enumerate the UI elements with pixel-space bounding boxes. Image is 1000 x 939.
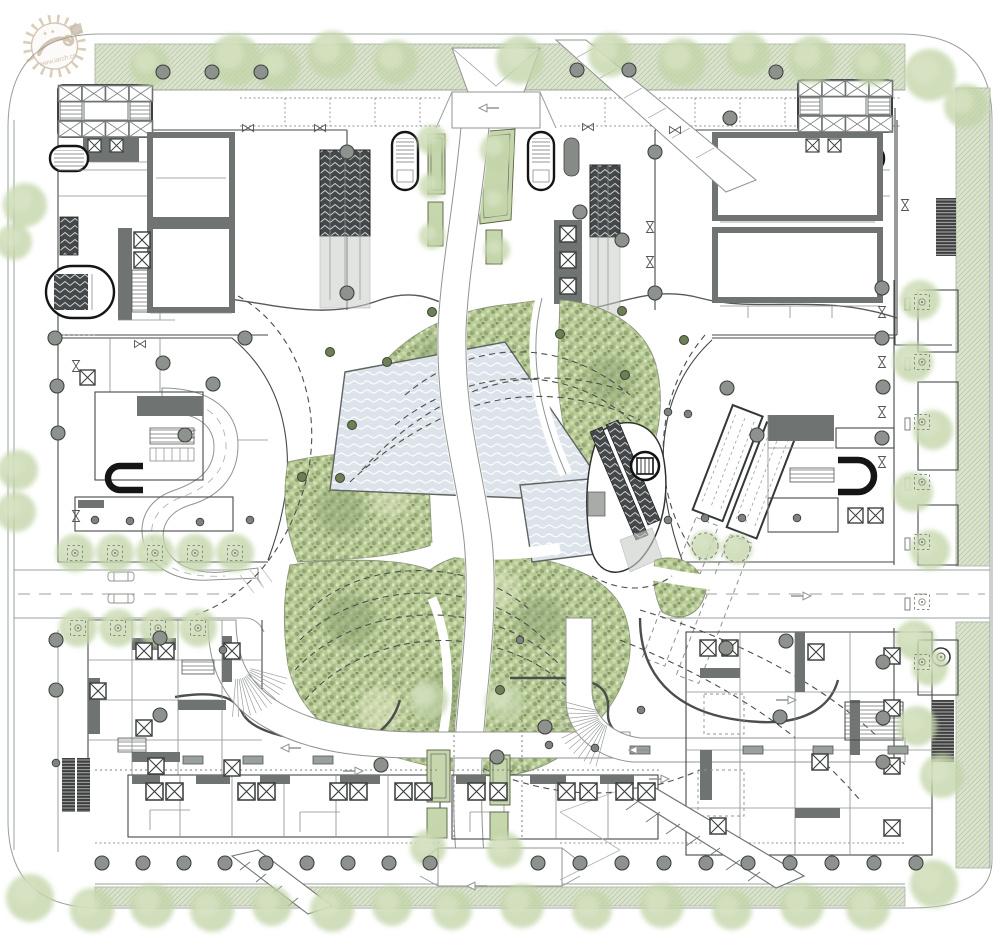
round-elevator <box>631 452 659 480</box>
site-plan-canvas: ✦ ✦ www.iarch.cn <box>0 0 1000 939</box>
u-turn-lane <box>108 466 143 490</box>
central-pavilion <box>587 420 666 572</box>
building-quadrant-top-left <box>46 85 452 335</box>
car-icon <box>108 572 134 603</box>
building-quadrant-top-right <box>554 80 952 345</box>
watermark-stamp: ✦ ✦ www.iarch.cn <box>0 0 110 95</box>
stair-oval-pod <box>392 132 418 190</box>
escalator-bank-topright <box>590 165 620 237</box>
site-plan-drawing <box>0 0 1000 939</box>
stair-oval-pod-left <box>46 266 114 318</box>
right-hedge-band-lower <box>956 622 990 868</box>
stair-oval-pod <box>528 132 554 190</box>
escalator-small <box>60 217 78 255</box>
u-turn-lane <box>838 460 874 492</box>
hall-block-topright <box>715 135 880 318</box>
hall-block-topleft <box>150 135 232 313</box>
stair-ramp-bottomright <box>560 786 804 888</box>
planter-pill <box>564 138 579 176</box>
escalator-bank-runout <box>590 237 620 317</box>
right-hedge-band-upper <box>956 88 990 566</box>
building-quadrant-right <box>635 280 894 684</box>
